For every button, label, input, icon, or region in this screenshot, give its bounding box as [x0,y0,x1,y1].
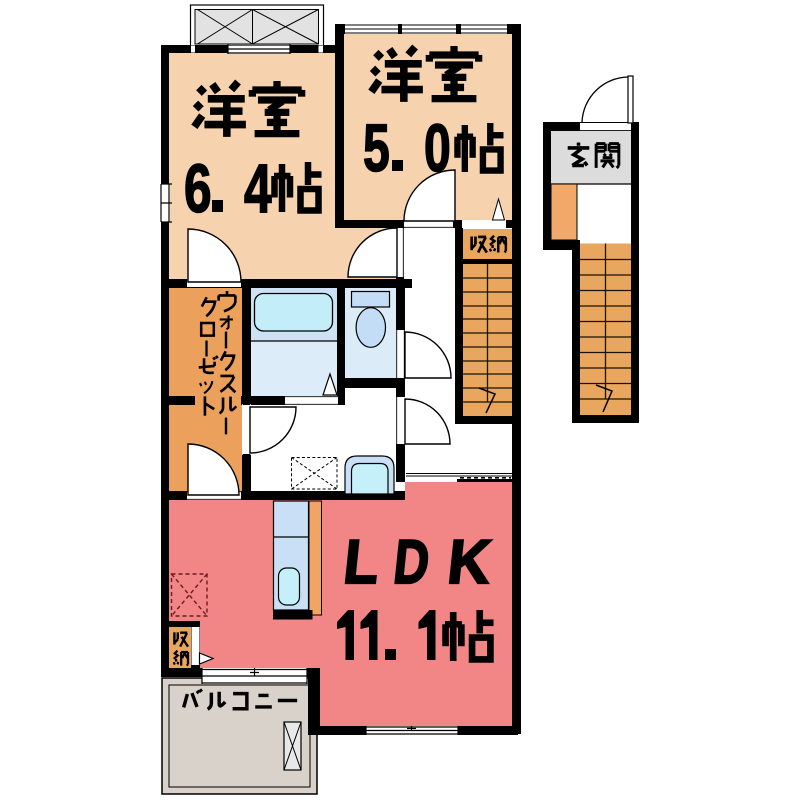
svg-text:6: 6 [184,150,212,227]
svg-text:K: K [445,527,495,597]
svg-text:D: D [391,526,433,596]
svg-text:0: 0 [424,111,451,186]
svg-text:L: L [341,527,383,597]
svg-text:4: 4 [244,150,272,227]
svg-text:5: 5 [363,111,390,186]
